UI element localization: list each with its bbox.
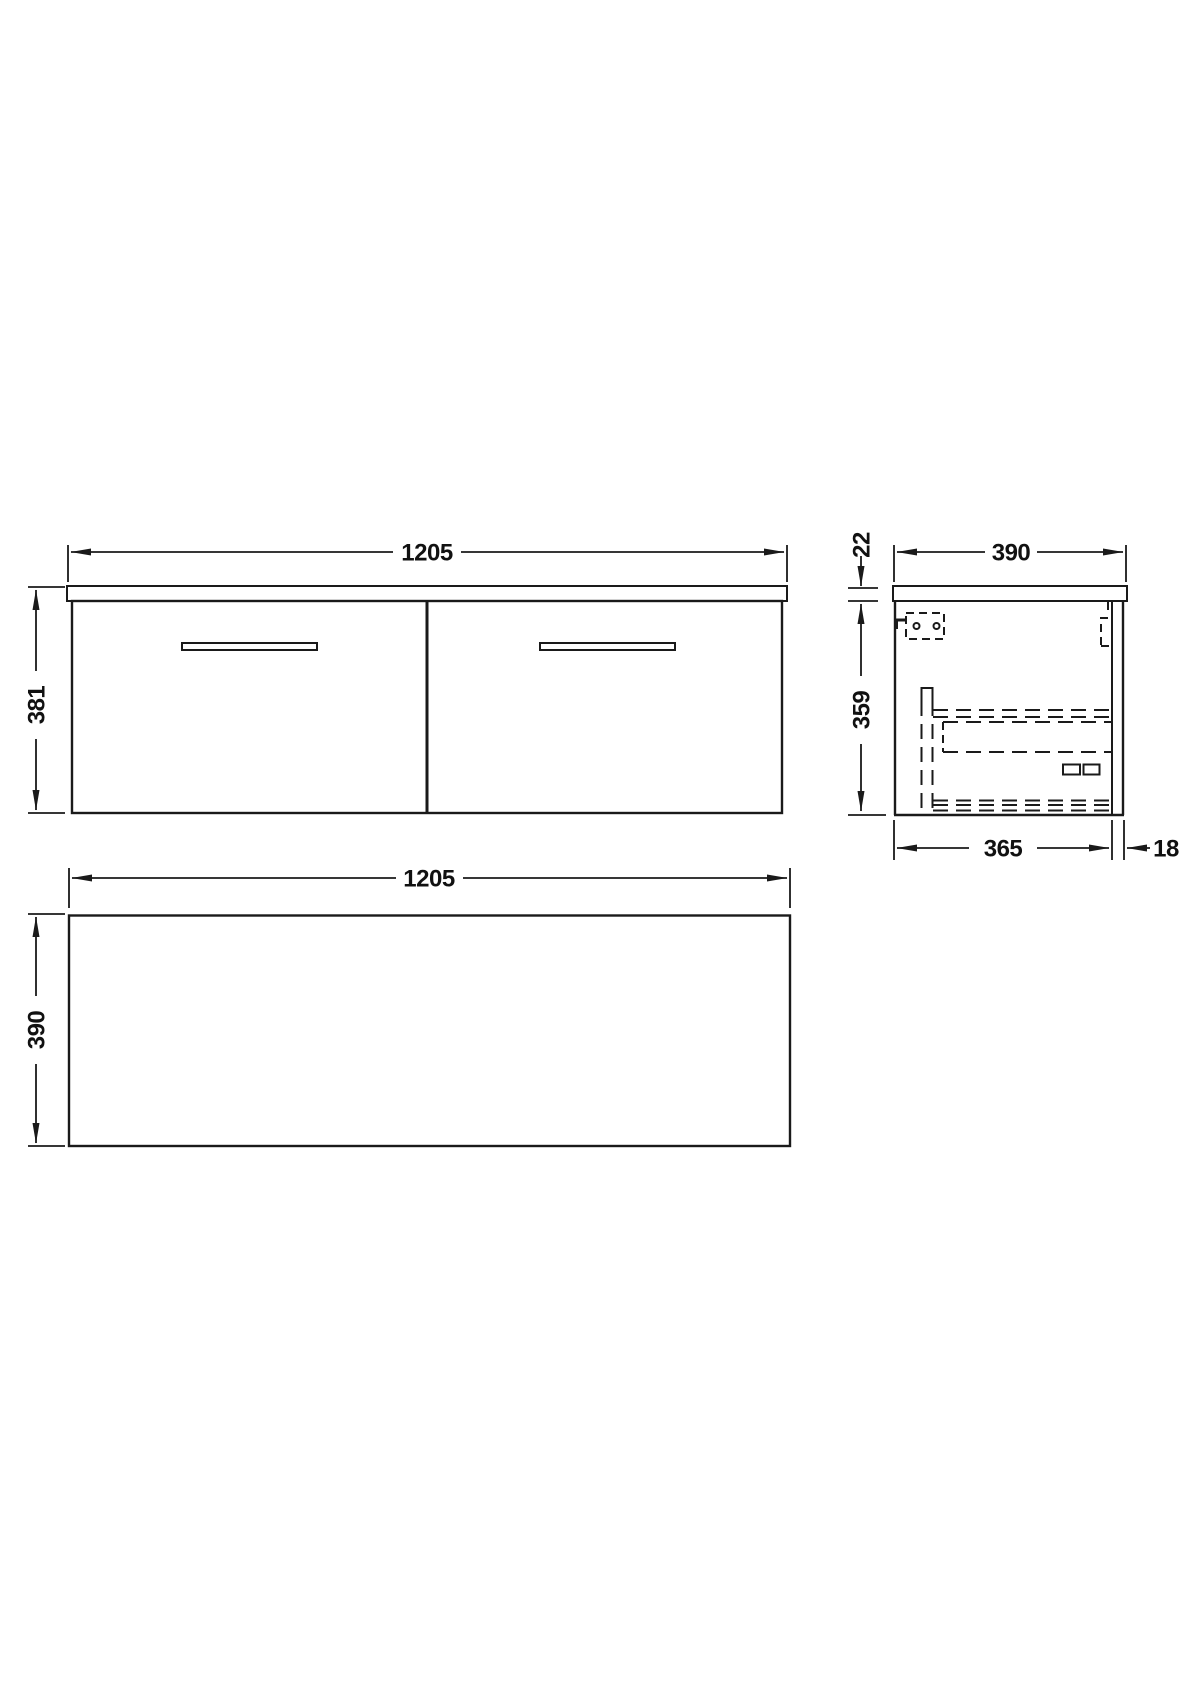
runner-clip	[1084, 765, 1100, 775]
plan-worktop-outline	[69, 916, 790, 1147]
front-drawer-handle-left	[182, 643, 317, 650]
runner-clip	[1063, 765, 1080, 775]
bracket-screw-hole	[914, 623, 920, 629]
front-width-label: 1205	[401, 540, 453, 567]
bracket-screw-hole	[934, 623, 940, 629]
technical-drawing-canvas: 1205 381	[0, 0, 1200, 1698]
front-drawer-handle-right	[540, 643, 675, 650]
side-depth-label: 365	[984, 836, 1023, 863]
front-worktop	[67, 586, 787, 601]
front-height-label: 381	[24, 686, 51, 725]
side-width-label: 390	[992, 540, 1031, 567]
side-worktop	[893, 586, 1127, 601]
side-back-offset-label: 18	[1153, 836, 1179, 863]
plan-width-label: 1205	[403, 866, 455, 893]
plan-depth-label: 390	[24, 1011, 51, 1050]
side-thickness-label: 22	[849, 532, 876, 558]
side-height-label: 359	[849, 691, 876, 730]
